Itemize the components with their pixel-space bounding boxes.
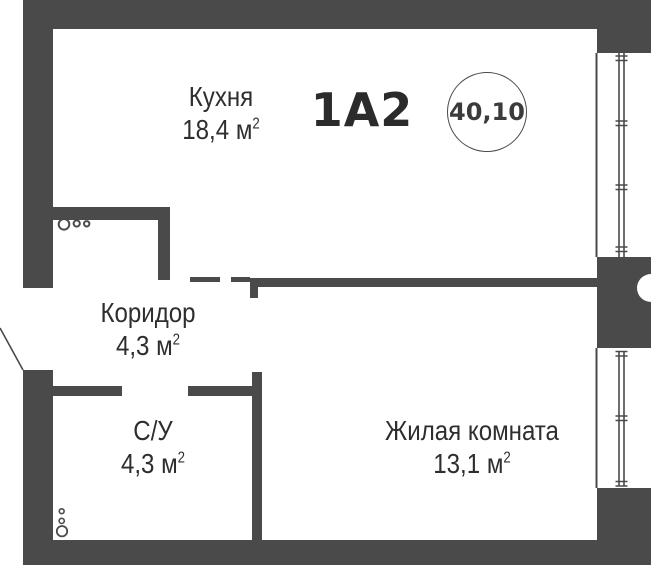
window-living-icon: [597, 348, 628, 488]
total-area-value: 40,10: [449, 98, 525, 126]
corridor-name: Коридор: [62, 296, 234, 329]
floor-plan: Кухня 18,4 м2 Коридор 4,3 м2 С/У 4,3 м2 …: [0, 0, 651, 568]
label-living-room: Жилая комната 13,1 м2: [360, 414, 584, 480]
kitchen-name: Кухня: [135, 80, 307, 113]
bathroom-name: С/У: [67, 414, 239, 447]
entry-door-leaf-icon: [0, 328, 23, 370]
label-bathroom: С/У 4,3 м2: [67, 414, 239, 480]
living-room-area: 13,1 м2: [360, 447, 584, 480]
bathroom-area: 4,3 м2: [67, 447, 239, 480]
riser-circles-bathroom-icon: [57, 509, 67, 537]
kitchen-area: 18,4 м2: [135, 113, 307, 146]
fixture-circles-corridor-icon: [59, 219, 90, 230]
total-area-badge: 40,10: [447, 72, 527, 152]
living-room-name: Жилая комната: [360, 414, 584, 447]
unit-code: 1А2: [296, 84, 428, 136]
label-corridor: Коридор 4,3 м2: [62, 296, 234, 362]
corridor-area: 4,3 м2: [62, 329, 234, 362]
label-kitchen: Кухня 18,4 м2: [135, 80, 307, 146]
window-kitchen-icon: [597, 53, 628, 257]
